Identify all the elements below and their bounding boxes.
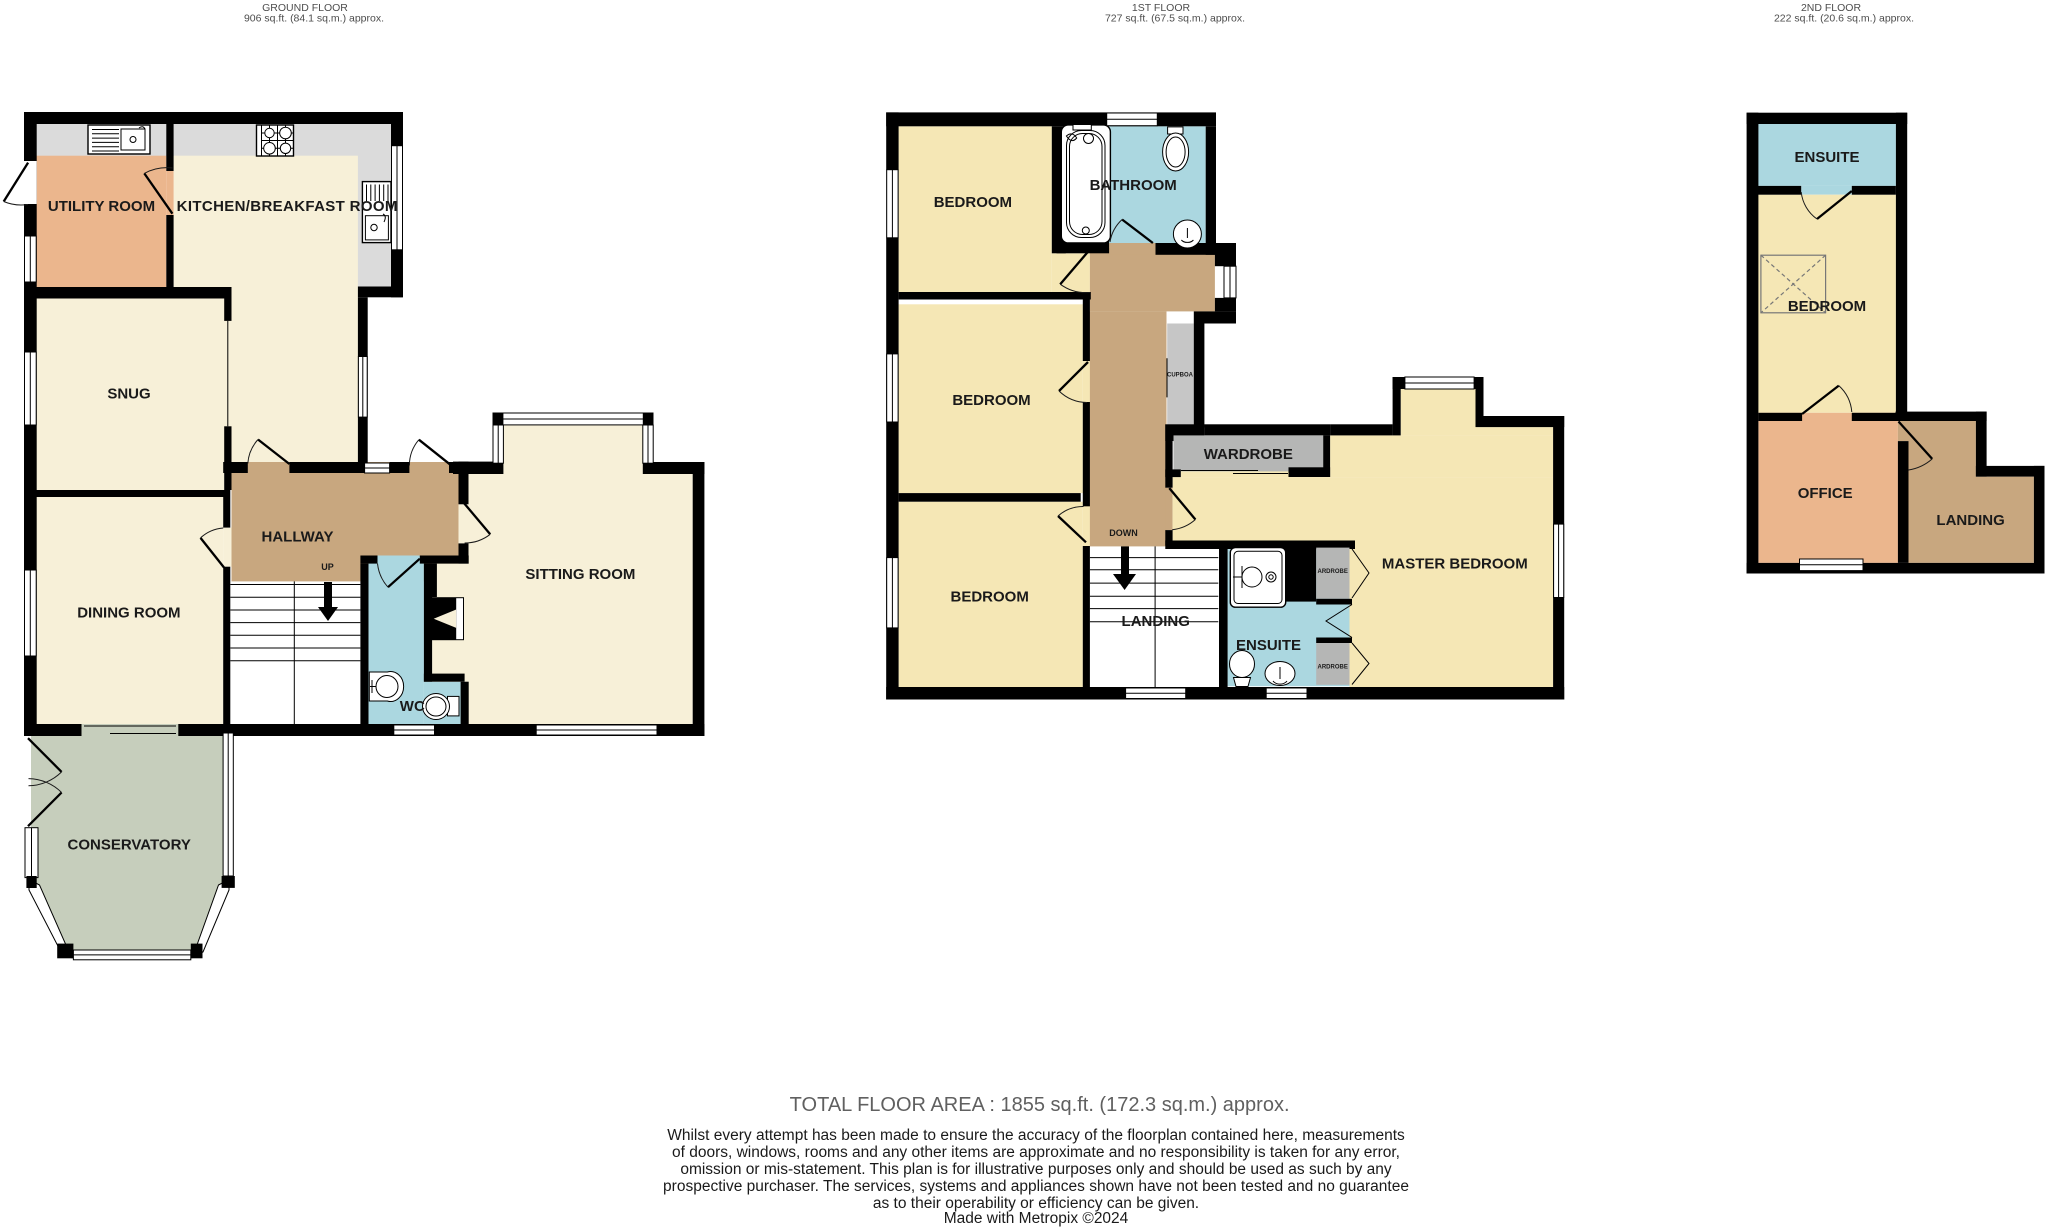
svg-text:BEDROOM: BEDROOM: [934, 194, 1012, 211]
svg-text:CONSERVATORY: CONSERVATORY: [68, 837, 191, 854]
svg-text:222 sq.ft. (20.6 sq.m.) approx: 222 sq.ft. (20.6 sq.m.) approx.: [1774, 13, 1914, 25]
svg-text:UP: UP: [321, 562, 334, 572]
svg-text:SNUG: SNUG: [107, 385, 150, 402]
svg-text:CUPBOA: CUPBOA: [1167, 373, 1194, 379]
svg-text:MASTER BEDROOM: MASTER BEDROOM: [1382, 555, 1528, 572]
svg-text:omission or mis-statement. Thi: omission or mis-statement. This plan is …: [680, 1161, 1392, 1178]
svg-text:Whilst every attempt has been: Whilst every attempt has been made to en…: [667, 1127, 1405, 1144]
svg-text:DINING ROOM: DINING ROOM: [77, 604, 180, 621]
svg-text:HALLWAY: HALLWAY: [262, 528, 334, 545]
svg-text:BEDROOM: BEDROOM: [1788, 298, 1866, 315]
svg-text:ARDROBE: ARDROBE: [1318, 569, 1348, 575]
svg-text:BEDROOM: BEDROOM: [952, 392, 1030, 409]
svg-text:ENSUITE: ENSUITE: [1794, 149, 1859, 166]
svg-text:OFFICE: OFFICE: [1798, 485, 1853, 502]
svg-text:727 sq.ft. (67.5 sq.m.) approx: 727 sq.ft. (67.5 sq.m.) approx.: [1105, 13, 1245, 25]
svg-text:ARDROBE: ARDROBE: [1318, 665, 1348, 671]
svg-text:ENSUITE: ENSUITE: [1236, 637, 1301, 654]
svg-text:906 sq.ft. (84.1 sq.m.) approx: 906 sq.ft. (84.1 sq.m.) approx.: [244, 13, 384, 25]
svg-text:KITCHEN/BREAKFAST ROOM: KITCHEN/BREAKFAST ROOM: [177, 198, 398, 215]
svg-text:prospective purchaser. The ser: prospective purchaser. The services, sys…: [663, 1178, 1409, 1195]
svg-text:WARDROBE: WARDROBE: [1204, 446, 1293, 463]
svg-text:of doors, windows, rooms and a: of doors, windows, rooms and any other i…: [672, 1144, 1400, 1161]
svg-text:Made with Metropix ©2024: Made with Metropix ©2024: [944, 1210, 1129, 1227]
svg-text:LANDING: LANDING: [1936, 512, 2004, 529]
svg-text:UTILITY ROOM: UTILITY ROOM: [48, 198, 155, 215]
svg-text:LANDING: LANDING: [1122, 613, 1190, 630]
svg-text:WC: WC: [400, 698, 425, 715]
svg-text:BEDROOM: BEDROOM: [951, 588, 1029, 605]
svg-text:BATHROOM: BATHROOM: [1090, 177, 1177, 194]
svg-text:TOTAL FLOOR AREA : 1855 sq.ft.: TOTAL FLOOR AREA : 1855 sq.ft. (172.3 sq…: [790, 1094, 1290, 1116]
svg-text:DOWN: DOWN: [1109, 528, 1138, 538]
svg-text:SITTING ROOM: SITTING ROOM: [525, 566, 635, 583]
